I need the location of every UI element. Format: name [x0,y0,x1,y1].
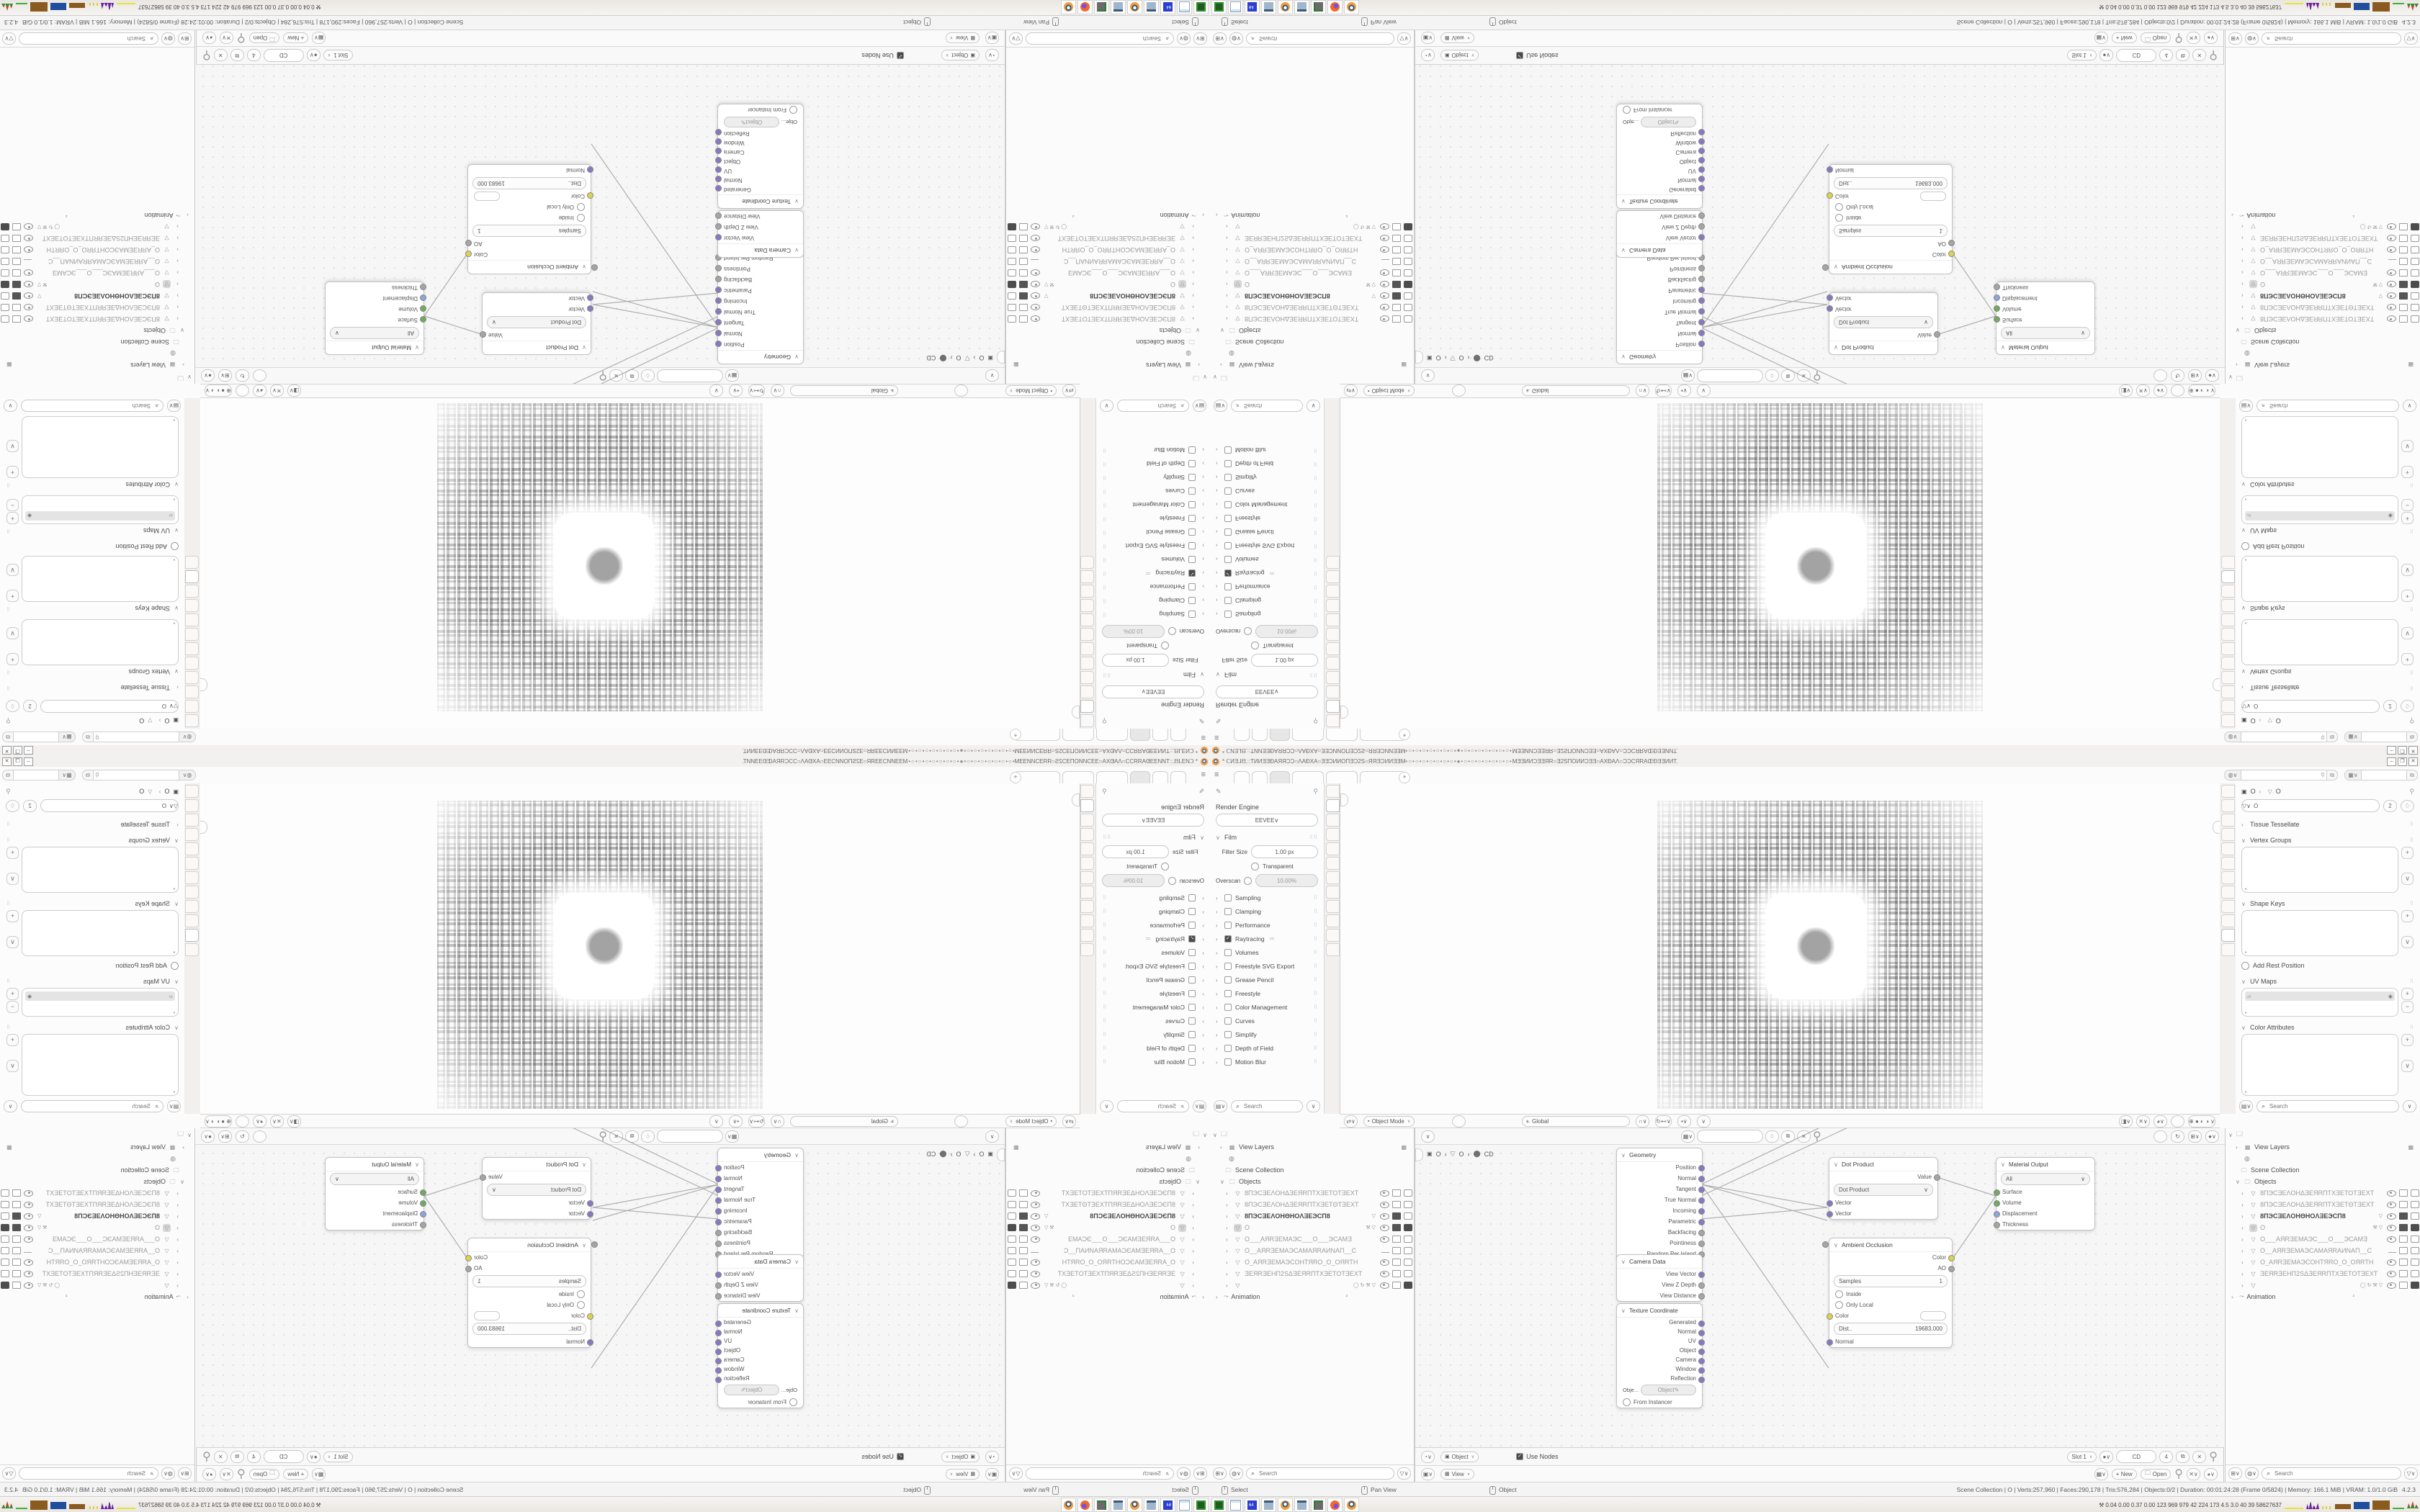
color-attributes-list[interactable]: ▸ [22,1034,179,1096]
slot-select[interactable]: Slot 1∨ [2067,1452,2097,1462]
workspace-tab[interactable] [1152,771,1168,784]
properties-tab-icon[interactable] [1326,570,1340,583]
scene-name-field[interactable]: ⚲ [2241,770,2327,780]
open-image-button[interactable]: 🗀 Open [249,1469,280,1480]
dot-product-node[interactable]: ∨Dot Product Value Dot Product∨ Vector V… [482,1157,591,1220]
add-workspace-button[interactable]: + [1399,729,1410,740]
proportional-editing-icon[interactable]: ↻⊷∨ [1655,1115,1672,1128]
camera-render-icon[interactable] [1,1247,9,1254]
search-box[interactable]: ⌕ [2257,400,2399,412]
annotation-circle-button[interactable] [1452,1115,1466,1128]
geometry-node[interactable]: ∨Geometry PositionNormalTangentTrue Norm… [1616,1148,1703,1260]
open-image-button[interactable]: 🗀 Open [2141,33,2172,44]
workspace-tab[interactable] [1130,771,1150,784]
properties-tab-icon[interactable] [1326,642,1340,655]
camera-render-icon[interactable] [1404,235,1412,242]
ambient-occlusion-node[interactable]: ∨Ambient Occlusion Color AO Samples1 Ins… [1829,1238,1953,1348]
object-name[interactable]: 8ПЭCƎEΛOHΔƎEЯRПTXƎETOTƎEXT [40,315,160,323]
uv-maps-list[interactable]: ▱◉ ▸ [22,495,179,524]
film-section-header[interactable]: ∨Film ⠿⠿ [1216,668,1318,681]
node-socket[interactable] [715,1282,722,1289]
material-users-count[interactable]: 4 [2159,1451,2173,1463]
node-socket[interactable] [1698,1358,1705,1364]
eye-icon[interactable] [1380,293,1389,300]
workspace-tab[interactable] [1096,728,1128,741]
section-checkbox[interactable] [1224,1017,1232,1025]
node-socket[interactable] [1994,1200,2000,1207]
screen-visibility-icon[interactable] [2399,246,2408,253]
object-name[interactable]: O__AЯRƎEMAЭCAMAЯRAИNAΠ__C [2260,1247,2381,1254]
node-output-row[interactable]: View Distance [718,211,803,222]
node-output-row[interactable]: Tangent [1617,1184,1702,1194]
render-section-row[interactable]: › Curves ⠿ [1102,485,1204,498]
properties-tab-icon[interactable] [2221,929,2235,942]
workspace-tab[interactable] [1292,728,1324,741]
extra-tool-icon[interactable]: •∨ [1677,385,1691,397]
only-local-checkbox[interactable] [577,203,585,211]
outliner-scene-icon[interactable]: ◍∨ [2245,1467,2259,1480]
node-socket[interactable] [1698,212,1705,219]
object-name[interactable]: O [50,1224,160,1231]
eye-icon[interactable] [2387,1282,2396,1289]
section-checkbox[interactable] [1188,474,1196,481]
render-section-row[interactable]: › Volumes ⠿ [1102,553,1204,566]
tissue-section[interactable]: ›Tissue Tessellate ⠿ [2241,681,2414,694]
eye-icon[interactable] [24,270,33,276]
properties-tab-icon[interactable] [1080,785,1094,798]
options-chevron-button[interactable]: ∨ [1100,1100,1113,1112]
shader-type-select[interactable]: ▣Object∨ [1440,50,1479,61]
taskbar-app-icon[interactable] [1077,0,1093,14]
drag-dots-icon[interactable]: ⠿ [1314,977,1318,983]
camera-render-icon[interactable] [2411,1236,2419,1243]
node-output-row[interactable]: Pointiness [718,264,803,274]
sidebar-toggle-icon[interactable] [200,678,207,691]
taskbar-app-icon[interactable] [1094,0,1109,14]
outliner-object-row[interactable]: › ▽ O__AЯRƎEMAЭCAMAЯRAИNAΠ__C [1008,1245,1194,1256]
node-socket[interactable] [420,1189,426,1196]
outliner-object-row[interactable]: › ▽ 8ПЭCƎEΛOHΔƎEЯRПTXƎETΘTƎEXT [1226,302,1412,313]
properties-tab-icon[interactable] [185,599,199,612]
eye-icon[interactable] [24,224,33,230]
drag-dots-icon[interactable]: ⠿ [1314,543,1318,549]
object-name[interactable]: O__AЯRƎEMAЭCAMAЯRAИNAΠ__C [1046,1247,1175,1254]
inside-checkbox[interactable] [1835,1290,1843,1298]
view-layers-row[interactable]: ›▦ View Layers ▦ [2236,1141,2419,1153]
node-socket[interactable] [1827,1339,1833,1346]
pin-icon[interactable]: ⚲ [1313,717,1318,725]
users-count[interactable]: 2 [23,701,37,713]
camera-render-icon[interactable] [1,1259,9,1266]
node-input-row[interactable]: Volume [326,1197,423,1208]
taskbar-app-icon[interactable] [1160,0,1175,14]
pin-icon[interactable]: ⚲ [202,1449,211,1464]
drag-dots-icon[interactable]: ⠿ [1102,570,1106,576]
object-name[interactable]: O [50,281,160,288]
section-checkbox[interactable] [1224,474,1232,481]
section-checkbox[interactable] [1224,611,1232,618]
outliner-search-box[interactable]: ⌕ [1026,1467,1174,1480]
texture-coordinate-node[interactable]: ∨Texture Coordinate GeneratedNormalUVObj… [717,1303,804,1408]
camera-render-icon[interactable] [1404,269,1412,276]
drag-dots-icon[interactable]: ⠿ [1314,570,1318,576]
view-layers-row[interactable]: ›▦ View Layers ▦ [1220,1141,1412,1153]
view-layer-name-field[interactable] [13,732,58,742]
vertex-group-menu-button[interactable]: ∨ [2401,873,2414,885]
section-checkbox[interactable] [1188,1058,1196,1066]
render-section-row[interactable]: › Freestyle SVG Export ⠿ [1216,539,1318,552]
editor-type-button[interactable]: ⇄∨ [1344,385,1358,397]
taskbar-app-icon[interactable] [1245,0,1260,14]
shader-node-editor[interactable]: ∨ ▦∨ ♢ ⧉ ✕ ⚲ ↻ ⊞∨ ●∨ [194,65,1005,384]
eye-icon[interactable] [1031,1202,1040,1208]
eye-icon[interactable] [1031,1190,1040,1197]
outliner-search-box[interactable]: ⌕ [19,1467,158,1480]
taskbar-app-icon[interactable] [1278,1498,1293,1512]
object-name[interactable]: 8ПЭCƎEΛOHΘHOΛƎEЭCП8 [1245,1212,1369,1220]
inside-checkbox[interactable] [1835,214,1843,222]
eye-icon[interactable] [2387,316,2396,323]
properties-tab-icon[interactable] [185,714,199,727]
eye-icon[interactable] [1031,1248,1039,1253]
vertex-groups-list[interactable]: ▸ [2241,619,2398,665]
material-icon[interactable]: ●∨ [2099,50,2113,62]
add-color-attribute-button[interactable]: + [6,466,19,478]
node-output-row[interactable]: AO [468,238,591,249]
outliner-object-row[interactable]: › ▽ 8ПЭCƎEΛOHΘHOΛƎEЭCП8 ▽ [1008,1210,1194,1222]
node-output-row[interactable]: UV [718,166,803,176]
render-section-row[interactable]: › Motion Blur ⠿ [1102,1056,1204,1068]
outliner-object-row[interactable]: › ▽ 8ПЭCƎEΛOHΔƎEЯRПTXƎETΘTƎEXT [1008,1199,1194,1210]
node-socket[interactable] [1698,297,1705,304]
outliner-object-row[interactable]: › ▽ 8ПЭCƎEΛOHΔƎEЯRПTXƎETOTƎEXT [2241,313,2419,325]
camera-render-icon[interactable] [1008,258,1016,265]
object-name[interactable]: O___AЯRƎEMAЭC___O___ЭCAMƎ [2260,269,2380,276]
target-select[interactable]: All∨ [2001,1173,2090,1185]
node-socket[interactable] [715,1230,722,1236]
outliner-display-row[interactable]: ∨🗔 [2228,372,2419,383]
object-name[interactable]: 8ПЭCƎEΛOHΘHOΛƎEЭCП8 [1051,1212,1175,1220]
camera-render-icon[interactable] [2411,1282,2419,1289]
color-attributes-list[interactable]: ▸ [2241,1034,2398,1096]
outliner-object-row[interactable]: › ▽ 8ПЭCƎEΛOHΔƎEЯRПTXƎETOTƎEXT [2241,1187,2419,1199]
eye-icon[interactable] [24,259,32,264]
outliner-display-mode-icon[interactable]: ⊞∨ [1193,1467,1207,1480]
eye-icon[interactable] [1380,224,1389,230]
properties-tab-icon[interactable] [1326,685,1340,698]
drag-dots-icon[interactable]: ⠿⠿ [1309,672,1318,678]
viewport-3d[interactable] [199,783,1080,1114]
properties-tab-icon[interactable] [1326,886,1340,899]
gizmo-icon[interactable]: ✕∨ [2136,385,2150,397]
snapping-icon[interactable]: ∩∨ [1636,385,1649,397]
pin-icon[interactable]: ⚲ [95,772,99,778]
eye-icon[interactable] [1031,1213,1040,1220]
render-section-row[interactable]: › Color Management ⠿ [1216,1001,1318,1014]
eye-icon[interactable] [1031,1236,1040,1243]
section-checkbox[interactable] [1188,501,1196,508]
sidebar-toggle-icon[interactable] [200,821,207,834]
objects-collection-row[interactable]: ∨🗀 Objects [1,1176,184,1187]
section-checkbox[interactable] [1224,1004,1232,1011]
render-section-row[interactable]: › Simplify ⠿ [1102,1028,1204,1041]
screen-visibility-icon[interactable] [12,315,21,323]
render-engine-select[interactable]: EEVEE∨ [1216,685,1318,698]
screen-visibility-icon[interactable] [12,304,21,311]
node-input-row[interactable]: Vector [483,1197,591,1208]
workspace-tab[interactable] [1234,728,1250,741]
camera-render-icon[interactable] [1404,281,1412,288]
camera-render-icon[interactable] [1008,1236,1016,1243]
node-output-row[interactable]: UV [1617,166,1702,176]
slot-select[interactable]: Slot 1∨ [323,1452,353,1462]
outliner-object-row[interactable]: › ▽ 8ПЭCƎEΛOHΔƎEЯRПTXƎETΘTƎEXT [1,302,179,313]
node-output-row[interactable]: View Z Depth [718,1279,803,1290]
eye-icon[interactable] [2388,259,2396,264]
node-output-row[interactable]: Object [718,157,803,166]
node-socket[interactable] [420,284,426,290]
add-shape-key-button[interactable]: + [6,590,19,602]
camera-render-icon[interactable] [1008,1259,1016,1266]
section-checkbox[interactable] [1224,501,1232,508]
extra-tool-icon[interactable]: •∨ [729,1115,743,1128]
properties-tab-icon[interactable] [185,929,199,942]
screen-visibility-icon[interactable] [2399,1236,2408,1243]
object-name[interactable]: O__AЯRƎEMAЭCAMAЯRAИNAΠ__C [39,1247,160,1254]
eye-icon[interactable] [1031,247,1040,253]
node-input-row[interactable]: Surface [1996,1187,2094,1197]
screen-visibility-icon[interactable] [2399,223,2408,230]
extra-tool-icon[interactable]: •∨ [1677,1115,1691,1128]
vertex-groups-list[interactable]: ▸ [2241,847,2398,893]
screen-visibility-icon[interactable] [2399,1189,2408,1197]
node-socket[interactable] [715,1349,722,1355]
workspace-tab[interactable] [1170,771,1186,784]
properties-tab-icon[interactable] [1080,900,1094,913]
outliner-object-row[interactable]: › ▽ 8ПЭCƎEΛOHΘHOΛƎEЭCП8 ▽ [2241,290,2419,302]
section-checkbox[interactable] [1188,611,1196,618]
add-workspace-button[interactable]: + [1399,772,1410,783]
drag-dots-icon[interactable]: ⠿ [1102,1018,1106,1024]
screen-visibility-icon[interactable] [12,281,21,288]
node-socket[interactable] [1698,157,1705,163]
eye-icon[interactable] [1031,316,1040,323]
node-output-row[interactable]: Normal [718,1173,803,1184]
properties-tab-icon[interactable] [2221,685,2235,698]
workspace-tab[interactable] [1130,728,1150,741]
section-checkbox[interactable] [1188,515,1196,522]
material-output-node[interactable]: ∨Material Output All∨ SurfaceVolumeDispl… [325,1157,424,1230]
outliner-display-row[interactable]: ∨🗔 [1008,372,1207,383]
properties-tab-icon[interactable] [2221,871,2235,884]
render-section-row[interactable]: › Curves ⠿ [1216,1014,1318,1027]
image-icon[interactable]: ▦∨ [2094,32,2108,45]
properties-tab-icon[interactable] [1326,799,1340,812]
outliner-object-row[interactable]: › ▽ ƎEЯRƎEHΠ2SΔƎEЯRПTXƎETOTƎEXT [1008,1268,1194,1279]
animation-row[interactable]: ›⤳ Animation ² [1008,1291,1204,1302]
section-checkbox[interactable] [1188,1004,1196,1011]
object-field[interactable]: Object ✎ [1641,1385,1696,1395]
taskbar-app-icon[interactable] [1111,0,1126,14]
properties-tab-icon[interactable] [1080,914,1094,927]
eye-icon[interactable] [24,1236,33,1243]
camera-render-icon[interactable] [2411,1201,2419,1208]
tissue-section[interactable]: ›Tissue Tessellate ⠿ [6,818,179,831]
taskbar-app-icon[interactable] [1294,1498,1309,1512]
eye-icon[interactable] [24,1271,33,1277]
eye-icon[interactable] [1380,1202,1389,1208]
drag-dots-icon[interactable]: ⠿ [1102,488,1106,494]
search-input[interactable] [2273,1470,2326,1477]
shape-keys-section[interactable]: ∨Shape Keys ⠿ [2241,602,2414,615]
object-field[interactable]: Object ✎ [724,1385,779,1395]
screen-visibility-icon[interactable] [1019,1189,1028,1197]
render-section-row[interactable]: › Raytracing ≔ ⠿ [1216,567,1318,580]
search-input[interactable] [1242,402,1296,410]
drag-dots-icon[interactable]: ⠿ [1314,529,1318,535]
users-count[interactable]: 2 [23,800,37,812]
section-checkbox[interactable] [1188,487,1196,495]
outliner-search-box[interactable]: ⌕ [19,32,158,45]
eye-icon[interactable] [24,1225,33,1231]
add-color-attribute-button[interactable]: + [2401,1034,2414,1046]
render-section-row[interactable]: › Sampling ⠿ [1102,608,1204,621]
xray-toggle-icon[interactable] [236,385,249,397]
screen-visibility-icon[interactable] [1019,1236,1028,1243]
view-layers-row[interactable]: ›▦ View Layers ▦ [1,1141,184,1153]
eye-icon[interactable] [2387,1236,2396,1243]
node-socket[interactable] [1698,166,1705,173]
scene-name-field[interactable]: ⚲ [93,770,179,780]
distance-field[interactable]: Dist..19683.000 [1834,177,1948,189]
drag-dots-icon[interactable]: ⠿ [1102,584,1106,590]
node-socket[interactable] [1698,1349,1705,1355]
outliner-object-row[interactable]: › ▽ 8ПЭCƎEΛOHΔƎEЯRПTXƎETΘTƎEXT [2241,302,2419,313]
properties-tab-icon[interactable] [185,914,199,927]
object-name[interactable]: O_AЯRƎEMAЭCOHTЯRO_O_OЯRTH [40,246,160,253]
section-checkbox[interactable] [1188,894,1196,901]
material-name-field[interactable]: CD [2116,49,2156,62]
drag-dots-icon[interactable]: ⠿ [1314,584,1318,590]
shader-node-editor[interactable]: ∨ ▦∨ ♢ ⧉ ✕ ⚲ ↻ ⊞∨ ●∨ [1415,1128,2226,1447]
node-socket[interactable] [715,287,722,293]
node-input-row[interactable]: Displacement [326,293,423,304]
camera-render-icon[interactable] [2411,269,2419,276]
node-socket[interactable] [587,192,593,199]
node-socket[interactable] [1698,1293,1705,1300]
camera-render-icon[interactable] [1404,315,1412,323]
node-input-row[interactable]: Displacement [1996,1208,2094,1219]
view-camera-icon[interactable]: ◨∨ [2119,1115,2133,1128]
globe-row[interactable]: ◍ [1008,348,1191,359]
outliner-object-row[interactable]: › ▽ O_AЯRƎEMAЭCOHTЯRO_O_OЯRTH [2241,1256,2419,1268]
node-output-row[interactable]: Generated [1617,185,1702,194]
properties-tab-icon[interactable] [1326,914,1340,927]
node-input-row[interactable]: Vector [483,293,591,304]
workspace-tab[interactable] [1252,771,1268,784]
node-input-row[interactable]: Thickness [1996,1219,2094,1230]
uv-map-item[interactable]: ▱◉ [25,511,175,521]
target-select[interactable]: All∨ [330,327,419,339]
properties-tab-icon[interactable] [1326,556,1340,569]
screen-visibility-icon[interactable] [1019,1270,1028,1277]
node-socket[interactable] [1698,1176,1705,1182]
breadcrumb-data[interactable]: O [139,717,144,724]
properties-tab-icon[interactable] [185,842,199,855]
camera-data-node[interactable]: ∨Camera Data View VectorView Z DepthView… [717,210,804,258]
object-name[interactable]: ƎEЯRƎEHΠ2SΔƎEЯRПTXƎETOTƎEXT [1047,1270,1175,1277]
viewport-3d[interactable] [1340,783,2221,1114]
node-socket[interactable] [1994,316,2000,323]
properties-tab-icon[interactable] [185,943,199,956]
screen-visibility-icon[interactable] [12,258,21,265]
render-section-row[interactable]: › Depth of Field ⠿ [1216,1042,1318,1055]
drag-dots-icon[interactable]: ⠿ [1314,1018,1318,1024]
add-shape-key-button[interactable]: + [2401,910,2414,922]
outliner-object-row[interactable]: › ▽ O___AЯRƎEMAЭC___O___ЭCAMƎ [2241,1233,2419,1245]
shader-node-editor[interactable]: ∨ ▦∨ ♢ ⧉ ✕ ⚲ ↻ ⊞∨ ●∨ [194,1128,1005,1447]
section-checkbox[interactable] [1224,556,1232,563]
samples-field[interactable]: Samples1 [472,225,586,237]
render-section-row[interactable]: › Freestyle ⠿ [1216,512,1318,525]
outliner-display-row[interactable]: ∨🗔 [1213,372,1412,383]
outliner-display-mode-icon[interactable]: ⊞∨ [2228,1467,2242,1480]
screen-visibility-icon[interactable] [1392,246,1401,253]
section-checkbox[interactable] [1188,935,1196,942]
search-input[interactable] [1109,1470,1162,1477]
properties-tab-icon[interactable] [2221,714,2235,727]
pin-icon[interactable]: ⚲ [2409,717,2414,725]
camera-render-icon[interactable] [1404,1189,1412,1197]
camera-render-icon[interactable] [1008,1270,1016,1277]
screen-visibility-icon[interactable] [2399,281,2408,288]
drag-dots-icon[interactable]: ⠿ [1314,447,1318,453]
screen-visibility-icon[interactable] [1392,258,1401,265]
properties-tab-icon[interactable] [1326,814,1340,827]
uv-map-item[interactable]: ▱◉ [2245,991,2395,1001]
annotation-circle-button[interactable] [1452,385,1466,397]
transparent-checkbox[interactable] [1161,642,1169,650]
mode-select[interactable]: ▪Object Mode∨ [1363,386,1415,397]
render-section-row[interactable]: › Clamping ⠿ [1216,594,1318,607]
render-section-row[interactable]: › Grease Pencil ⠿ [1216,526,1318,539]
render-section-row[interactable]: › Volumes ⠿ [1216,946,1318,959]
node-socket[interactable] [1698,319,1705,325]
screen-visibility-icon[interactable] [12,1212,21,1220]
eye-icon[interactable] [1380,270,1389,276]
breadcrumb-object[interactable]: O [2251,717,2256,724]
render-engine-select[interactable]: EEVEE∨ [1102,685,1204,698]
image-mode-select[interactable]: ▦View∨ [1440,33,1474,44]
taskbar-app-icon[interactable] [1311,1498,1326,1512]
render-section-row[interactable]: › Freestyle ⠿ [1216,987,1318,1000]
node-output-row[interactable]: View Z Depth [718,222,803,233]
color-swatch[interactable] [474,1311,500,1320]
toolbar-toggle-icon[interactable] [1340,793,1348,806]
outliner-object-row[interactable]: › ▽ ƎEЯRƎEHΠ2SΔƎEЯRПTXƎETOTƎEXT [1,233,179,244]
shape-key-menu-button[interactable]: ∨ [6,564,19,576]
editor-type-button[interactable]: ◔∨ [985,50,999,62]
globe-row[interactable]: ◍ [1229,348,1412,359]
node-output-row[interactable]: View Distance [1617,211,1702,222]
node-output-row[interactable]: View Vector [718,233,803,243]
image-mode-select[interactable]: ▦View∨ [1440,1469,1474,1480]
taskbar-app-icon[interactable] [1061,0,1076,14]
node-output-row[interactable]: View Distance [1617,1290,1702,1301]
drag-dots-icon[interactable]: ⠿⠿ [1309,834,1318,840]
outliner-display-mode-icon[interactable]: ⊞∨ [1193,32,1207,45]
screen-visibility-icon[interactable] [2399,315,2408,323]
